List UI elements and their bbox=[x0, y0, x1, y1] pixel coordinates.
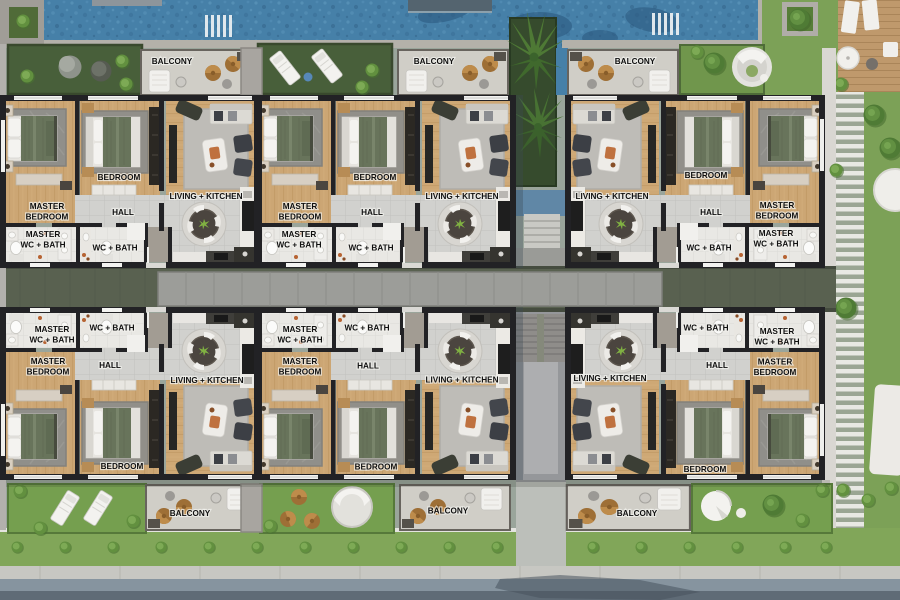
svg-text:BEDROOM: BEDROOM bbox=[27, 368, 70, 377]
svg-text:MASTER: MASTER bbox=[31, 357, 66, 366]
svg-text:HALL: HALL bbox=[99, 361, 121, 370]
svg-text:MASTER: MASTER bbox=[760, 201, 795, 210]
svg-text:WC + BATH: WC + BATH bbox=[29, 336, 74, 345]
svg-text:WC + BATH: WC + BATH bbox=[276, 241, 321, 250]
svg-text:MASTER: MASTER bbox=[283, 357, 318, 366]
svg-text:WC + BATH: WC + BATH bbox=[753, 240, 798, 249]
svg-text:BEDROOM: BEDROOM bbox=[756, 212, 799, 221]
svg-text:MASTER: MASTER bbox=[283, 325, 318, 334]
svg-text:MASTER: MASTER bbox=[283, 202, 318, 211]
svg-text:MASTER: MASTER bbox=[760, 327, 795, 336]
svg-text:WC + BATH: WC + BATH bbox=[683, 324, 728, 333]
svg-text:LIVING + KITCHEN: LIVING + KITCHEN bbox=[575, 192, 648, 201]
svg-text:BEDROOM: BEDROOM bbox=[355, 463, 398, 472]
svg-text:MASTER: MASTER bbox=[26, 230, 61, 239]
svg-text:MASTER: MASTER bbox=[35, 325, 70, 334]
svg-text:BALCONY: BALCONY bbox=[428, 507, 469, 516]
svg-text:HALL: HALL bbox=[700, 208, 722, 217]
svg-text:WC + BATH: WC + BATH bbox=[20, 241, 65, 250]
svg-text:BEDROOM: BEDROOM bbox=[26, 213, 69, 222]
svg-text:WC + BATH: WC + BATH bbox=[92, 244, 137, 253]
svg-text:HALL: HALL bbox=[357, 362, 379, 371]
svg-text:HALL: HALL bbox=[361, 208, 383, 217]
svg-text:LIVING + KITCHEN: LIVING + KITCHEN bbox=[425, 376, 498, 385]
svg-text:BALCONY: BALCONY bbox=[152, 57, 193, 66]
svg-text:WC + BATH: WC + BATH bbox=[686, 244, 731, 253]
svg-text:MASTER: MASTER bbox=[759, 229, 794, 238]
svg-text:MASTER: MASTER bbox=[30, 202, 65, 211]
svg-text:MASTER: MASTER bbox=[282, 230, 317, 239]
svg-text:LIVING + KITCHEN: LIVING + KITCHEN bbox=[169, 192, 242, 201]
svg-text:HALL: HALL bbox=[112, 208, 134, 217]
svg-text:BEDROOM: BEDROOM bbox=[279, 368, 322, 377]
svg-text:WC + BATH: WC + BATH bbox=[348, 244, 393, 253]
svg-text:LIVING + KITCHEN: LIVING + KITCHEN bbox=[425, 192, 498, 201]
svg-text:BEDROOM: BEDROOM bbox=[279, 213, 322, 222]
svg-text:BEDROOM: BEDROOM bbox=[685, 171, 728, 180]
svg-text:WC + BATH: WC + BATH bbox=[89, 324, 134, 333]
svg-text:MASTER: MASTER bbox=[758, 358, 793, 367]
svg-text:LIVING + KITCHEN: LIVING + KITCHEN bbox=[170, 376, 243, 385]
svg-text:BALCONY: BALCONY bbox=[414, 57, 455, 66]
svg-text:LIVING + KITCHEN: LIVING + KITCHEN bbox=[573, 374, 646, 383]
svg-text:BALCONY: BALCONY bbox=[615, 57, 656, 66]
svg-text:WC + BATH: WC + BATH bbox=[344, 324, 389, 333]
svg-text:WC + BATH: WC + BATH bbox=[277, 336, 322, 345]
svg-text:HALL: HALL bbox=[706, 361, 728, 370]
svg-text:BEDROOM: BEDROOM bbox=[684, 465, 727, 474]
svg-text:BEDROOM: BEDROOM bbox=[754, 368, 797, 377]
svg-text:BEDROOM: BEDROOM bbox=[98, 173, 141, 182]
svg-text:BEDROOM: BEDROOM bbox=[101, 462, 144, 471]
svg-text:BALCONY: BALCONY bbox=[617, 509, 658, 518]
svg-text:BEDROOM: BEDROOM bbox=[354, 173, 397, 182]
svg-text:BALCONY: BALCONY bbox=[170, 509, 211, 518]
svg-text:WC + BATH: WC + BATH bbox=[754, 338, 799, 347]
